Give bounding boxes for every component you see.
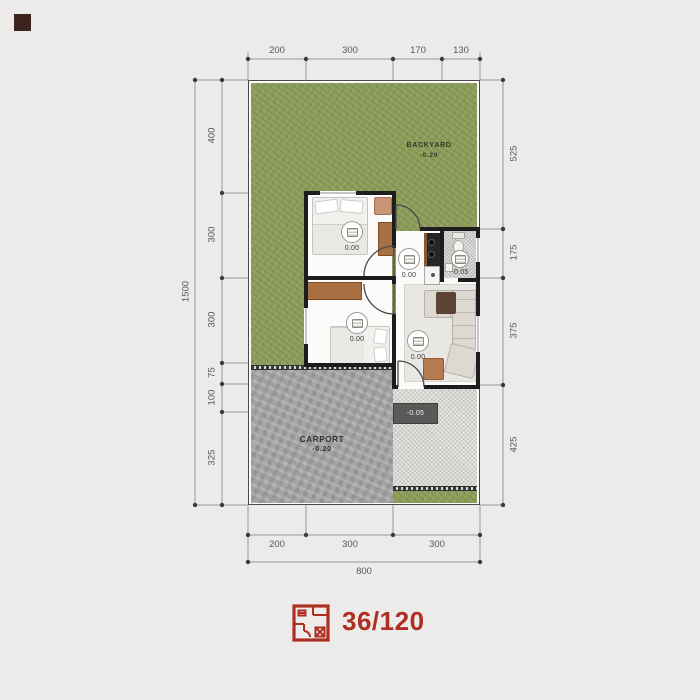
dim-label: 300	[207, 300, 218, 340]
level-marker-hallway	[398, 248, 420, 270]
dim-label: 300	[207, 215, 218, 255]
dim-label: 375	[509, 311, 520, 351]
level-label: 0.00	[337, 245, 367, 252]
floorplan-logo-icon	[291, 603, 331, 643]
bed-icon	[352, 319, 363, 328]
carport-label: CARPORT	[282, 435, 362, 444]
dimension-lines-layer	[0, 0, 700, 700]
dim-label: 170	[398, 45, 438, 56]
dim-label: 200	[257, 45, 297, 56]
dim-label: 100	[207, 378, 218, 418]
dim-label: 300	[417, 539, 457, 550]
level-label: 0.00	[342, 336, 372, 343]
kitchen-icon	[404, 255, 415, 264]
dim-label-total: 800	[344, 566, 384, 577]
shower-icon	[455, 255, 466, 264]
dimension-lines	[195, 52, 503, 562]
house-type-label: 36/120	[342, 606, 425, 637]
dim-label-total: 1500	[181, 272, 192, 312]
dim-label: 525	[509, 134, 520, 174]
dim-label: 300	[330, 539, 370, 550]
level-label: 0.00	[394, 272, 424, 279]
sofa-icon	[413, 337, 424, 346]
dim-label: 200	[257, 539, 297, 550]
carport-level: -0.20	[282, 446, 362, 453]
dim-label: 130	[441, 45, 481, 56]
level-marker-bedroom2	[346, 312, 368, 334]
level-marker-bedroom1	[341, 221, 363, 243]
bed-icon	[347, 228, 358, 237]
floor-plan-canvas: -0.05 0.00 0.00	[0, 0, 700, 700]
backyard-label: BACKYARD	[389, 142, 469, 149]
dim-label: 175	[509, 233, 520, 273]
dim-label: 425	[509, 425, 520, 465]
level-marker-bathroom	[451, 250, 469, 268]
dim-label: 400	[207, 116, 218, 156]
dimension-dots	[193, 57, 505, 564]
dim-label: 300	[330, 45, 370, 56]
level-label: -0.05	[445, 269, 475, 276]
level-label: 0.00	[403, 354, 433, 361]
dim-label: 325	[207, 438, 218, 478]
level-marker-living	[407, 330, 429, 352]
backyard-level: -0.20	[389, 152, 469, 159]
